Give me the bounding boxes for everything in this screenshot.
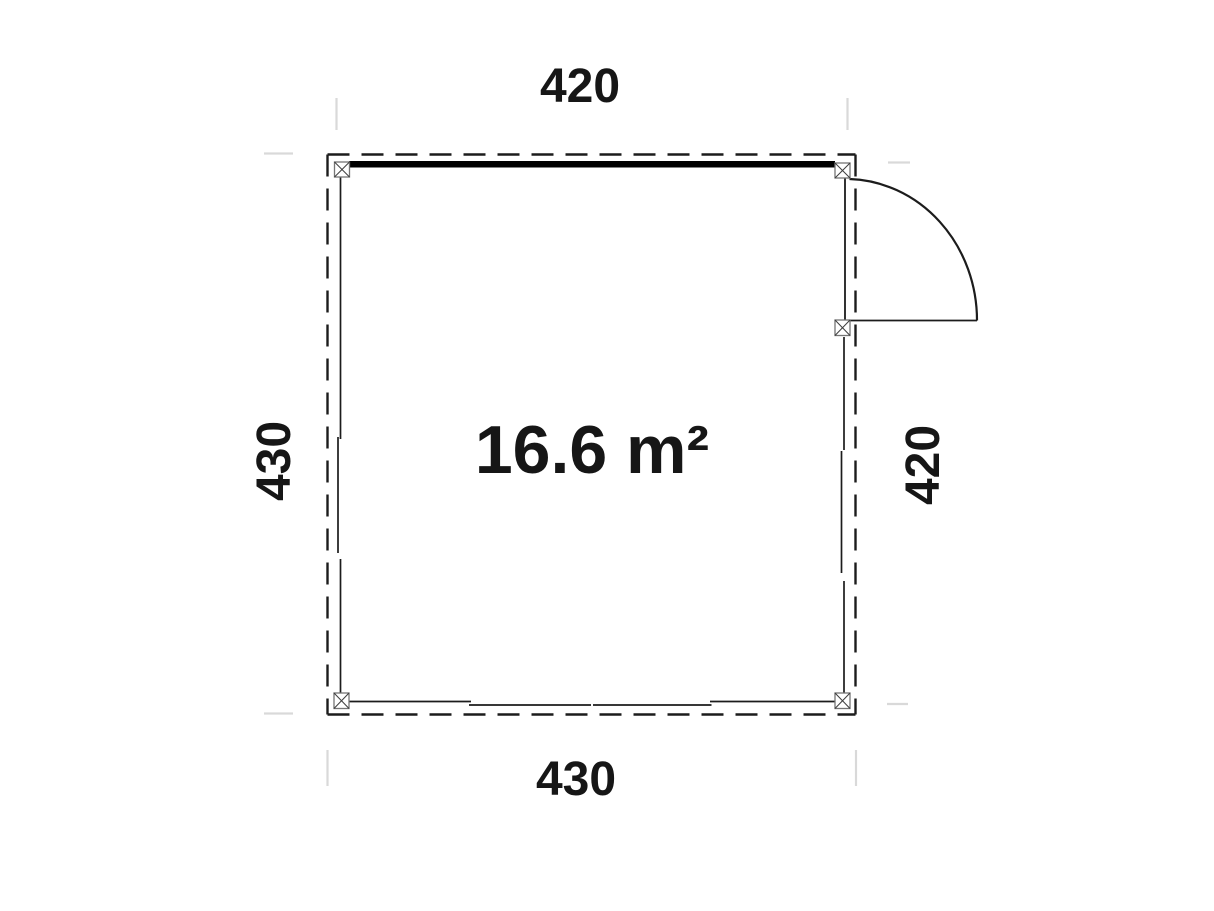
bottom-wall: [350, 702, 836, 706]
left-wall: [338, 177, 341, 693]
top-wall: [349, 161, 835, 168]
dimension-right: 420: [900, 425, 948, 505]
post-top-left: [335, 162, 350, 177]
right-wall: [842, 337, 845, 693]
post-top-right: [835, 163, 850, 178]
dimension-bottom: 430: [536, 756, 616, 804]
dimension-left: 430: [251, 421, 299, 501]
post-bottom-left: [334, 693, 349, 709]
floor-plan-canvas: 420 430 430 420 16.6 m²: [0, 0, 1214, 911]
area-label: 16.6 m²: [475, 416, 709, 484]
dimension-top: 420: [540, 63, 620, 111]
post-bottom-right: [835, 693, 850, 709]
post-door-hinge: [835, 320, 850, 336]
door: [845, 179, 977, 321]
door-swing-arc: [850, 179, 978, 321]
